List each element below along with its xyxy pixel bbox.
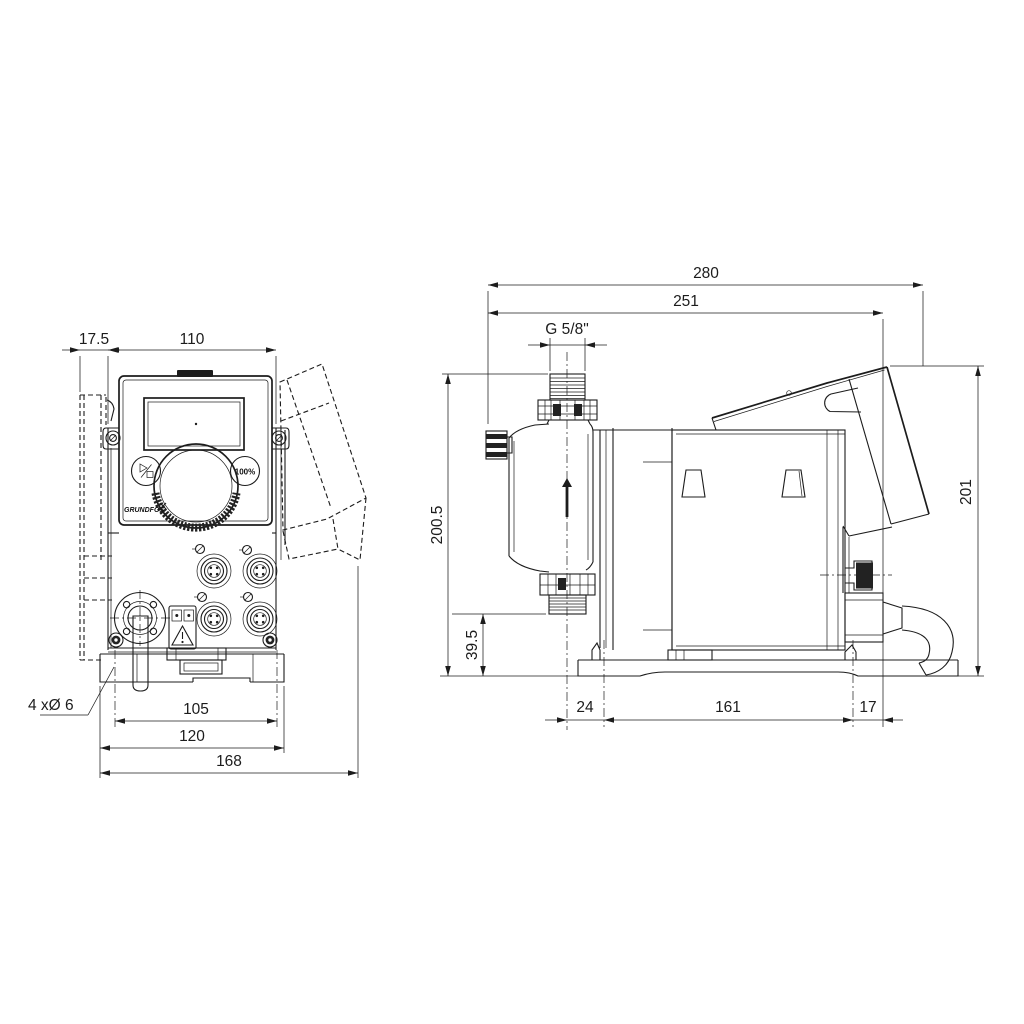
dim-text: 280 xyxy=(693,265,719,282)
dim-text: 200.5 xyxy=(429,506,446,545)
dim-text: 17 xyxy=(859,699,876,716)
dim-text: 105 xyxy=(183,701,209,718)
dim-text: 39.5 xyxy=(464,630,481,660)
top-tab xyxy=(177,370,213,377)
full-speed-label: 100% xyxy=(235,468,255,477)
dim-text: 201 xyxy=(958,479,975,505)
dimensional-drawing: 100% GRUNDFOS xyxy=(0,0,1024,1024)
dim-text: 251 xyxy=(673,293,699,310)
dim-text: 168 xyxy=(216,753,242,770)
dim-text: 110 xyxy=(180,331,205,348)
display-dot xyxy=(195,423,197,425)
note-text: 4 xØ 6 xyxy=(28,697,74,714)
dim-text: 24 xyxy=(576,699,594,716)
drawing-page: 100% GRUNDFOS xyxy=(0,0,1024,1024)
dim-text: 161 xyxy=(715,699,741,716)
dim-text: 17.5 xyxy=(79,331,109,348)
dim-text: 120 xyxy=(179,728,205,745)
dim-text: G 5/8" xyxy=(545,321,588,338)
brand-text: GRUNDFOS xyxy=(124,507,164,514)
